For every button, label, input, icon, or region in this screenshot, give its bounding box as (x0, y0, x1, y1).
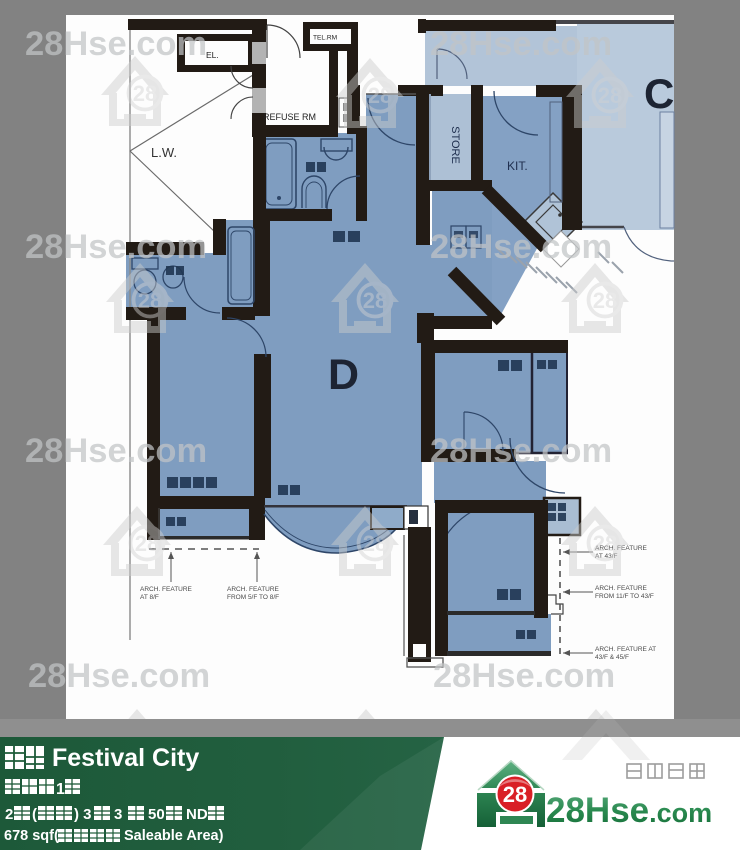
svg-text:28: 28 (503, 782, 527, 807)
svg-text:ARCH. FEATURE: ARCH. FEATURE (140, 586, 193, 593)
svg-text:28Hse.com: 28Hse.com (28, 657, 210, 695)
svg-text:STORE: STORE (449, 126, 461, 164)
svg-text:28Hse.com: 28Hse.com (25, 432, 207, 470)
svg-text:Saleable Area): Saleable Area) (124, 828, 224, 844)
svg-text:(: ( (32, 806, 37, 823)
svg-text:28Hse.com: 28Hse.com (25, 228, 207, 266)
svg-text:ND: ND (186, 806, 208, 823)
svg-text:AT 8/F: AT 8/F (140, 594, 159, 601)
svg-text:FROM 5/F TO 8/F: FROM 5/F TO 8/F (227, 594, 279, 601)
svg-text:50: 50 (148, 806, 165, 823)
svg-text:3: 3 (114, 806, 122, 823)
svg-text:) 3: ) 3 (74, 806, 92, 823)
svg-text:EL.: EL. (206, 50, 219, 60)
svg-text:2: 2 (5, 806, 13, 823)
svg-text:ARCH. FEATURE: ARCH. FEATURE (227, 586, 280, 593)
svg-text:D: D (328, 351, 359, 399)
svg-text:L.W.: L.W. (151, 145, 177, 160)
svg-text:C: C (644, 70, 674, 117)
svg-text:ARCH. FEATURE: ARCH. FEATURE (595, 585, 648, 592)
svg-text:REFUSE RM: REFUSE RM (263, 112, 316, 122)
svg-text:678 sqf(: 678 sqf( (4, 828, 59, 844)
svg-text:KIT.: KIT. (507, 159, 528, 173)
svg-text:28Hse.com: 28Hse.com (430, 228, 612, 266)
svg-text:28Hse.com: 28Hse.com (430, 25, 612, 63)
svg-text:28Hse.com: 28Hse.com (25, 25, 207, 63)
svg-text:ARCH. FEATURE AT: ARCH. FEATURE AT (595, 646, 656, 653)
svg-text:Festival City: Festival City (52, 744, 199, 772)
svg-text:TEL.RM: TEL.RM (313, 35, 337, 42)
svg-text:FROM 11/F TO 43/F: FROM 11/F TO 43/F (595, 593, 654, 600)
svg-text:28Hse.com: 28Hse.com (433, 657, 615, 695)
svg-text:28Hse.com: 28Hse.com (430, 432, 612, 470)
svg-text:1: 1 (56, 781, 65, 798)
